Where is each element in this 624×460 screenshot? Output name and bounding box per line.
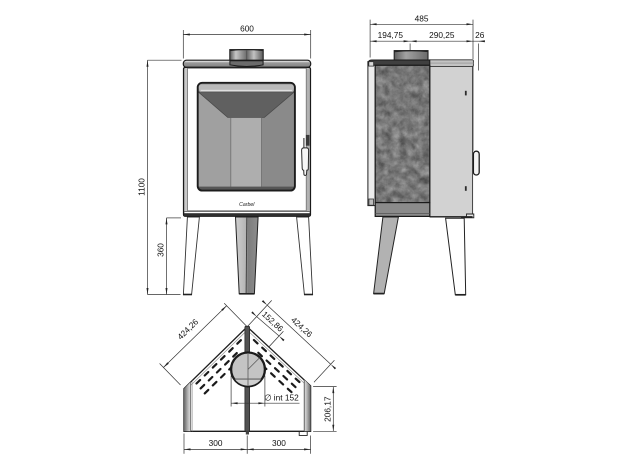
svg-text:424,26: 424,26 bbox=[175, 316, 200, 341]
svg-text:360: 360 bbox=[156, 243, 166, 257]
svg-text:206,17: 206,17 bbox=[322, 396, 332, 422]
svg-text:485: 485 bbox=[415, 13, 429, 23]
svg-text:300: 300 bbox=[209, 438, 223, 448]
svg-text:26: 26 bbox=[475, 30, 485, 40]
svg-text:194,75: 194,75 bbox=[378, 30, 404, 40]
svg-text:290,25: 290,25 bbox=[429, 30, 455, 40]
svg-text:600: 600 bbox=[240, 24, 254, 34]
svg-text:1100: 1100 bbox=[137, 178, 147, 196]
svg-text:152,86: 152,86 bbox=[260, 309, 286, 334]
svg-text:Carbel: Carbel bbox=[239, 202, 255, 208]
svg-text:424,26: 424,26 bbox=[289, 315, 315, 340]
svg-text:300: 300 bbox=[272, 438, 286, 448]
svg-text:∅ int 152: ∅ int 152 bbox=[264, 393, 299, 403]
